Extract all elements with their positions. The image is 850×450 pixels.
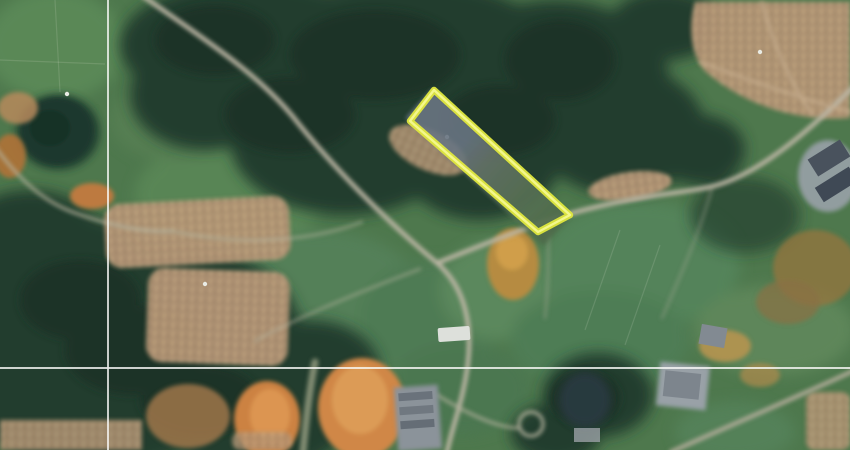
gray-building-bottom (574, 428, 600, 442)
residential-mid-left-lower (145, 268, 290, 367)
houses-bottom-right-corner (806, 392, 850, 450)
houses-bottom-center (232, 432, 292, 450)
residential-bottom-left (0, 420, 142, 450)
satellite-map-image[interactable] (0, 0, 850, 450)
building-strip-bottom-center (394, 385, 442, 450)
dark-buildings-bottom (559, 372, 611, 428)
white-roof-building (438, 326, 471, 342)
residential-mid-left-upper (103, 195, 291, 269)
warehouse-bottom-right-roof (663, 370, 702, 400)
